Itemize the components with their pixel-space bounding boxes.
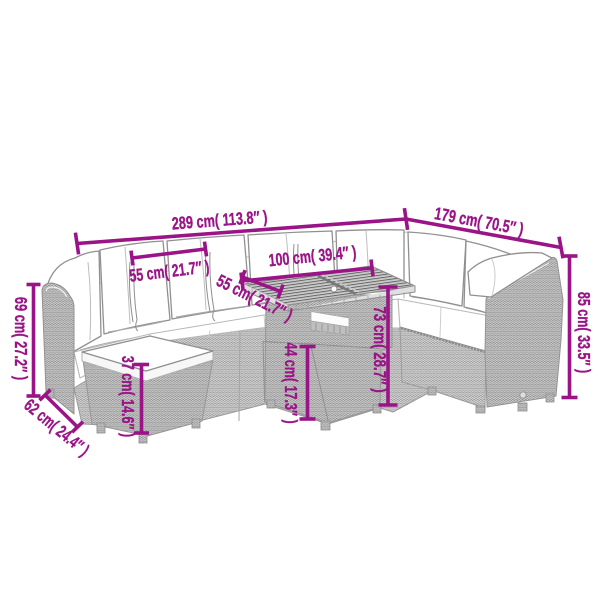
svg-text:69 cm( 27.2″ ): 69 cm( 27.2″ ) [10, 297, 29, 380]
svg-text:37 cm( 14.6″ ): 37 cm( 14.6″ ) [117, 356, 137, 437]
svg-text:73 cm( 28.7″ ): 73 cm( 28.7″ ) [369, 306, 388, 392]
svg-text:85 cm( 33.5″ ): 85 cm( 33.5″ ) [573, 292, 593, 373]
svg-text:44 cm( 17.3″ ): 44 cm( 17.3″ ) [280, 342, 300, 423]
